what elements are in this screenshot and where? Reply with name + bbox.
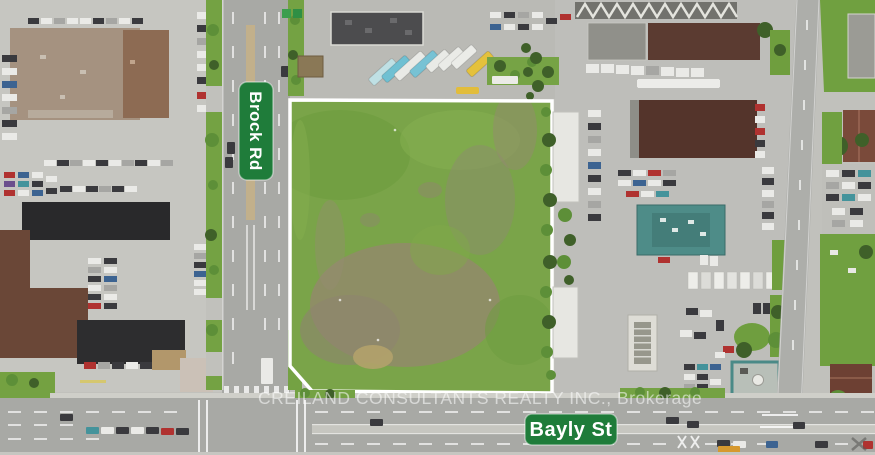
skylight-building — [628, 315, 657, 371]
trailer-row — [688, 272, 786, 289]
yellow-bus-horizontal — [456, 87, 479, 94]
depot-building — [331, 12, 423, 45]
watermark-text: CREILAND CONSULTANTS REALTY INC., Broker… — [258, 388, 702, 408]
brock-rd-sign: Brock Rd — [239, 82, 273, 180]
aerial-image: CREILAND CONSULTANTS REALTY INC., Broker… — [0, 0, 875, 455]
restaurant-building — [732, 362, 779, 396]
parking-column-mid — [588, 110, 601, 221]
residential-strip — [820, 0, 875, 410]
bayly-st-sign-label: Bayly St — [530, 419, 613, 441]
brock-rd-sign-label: Brock Rd — [246, 91, 265, 171]
dark-roof-building-mid — [630, 100, 757, 158]
subject-parcel — [270, 90, 555, 393]
orange-truck — [718, 446, 740, 453]
parking-row-top — [28, 18, 143, 24]
aerial-photo: CREILAND CONSULTANTS REALTY INC., Broker… — [0, 0, 875, 455]
black-roof-building-north — [22, 202, 170, 240]
dark-roof-building-north — [648, 23, 760, 60]
white-warehouse-south — [553, 287, 578, 358]
bayly-st-sign: Bayly St — [525, 414, 617, 445]
parking-row-south — [84, 362, 152, 369]
east-building — [848, 14, 875, 78]
white-warehouse-north — [553, 112, 579, 202]
shed — [298, 56, 323, 77]
